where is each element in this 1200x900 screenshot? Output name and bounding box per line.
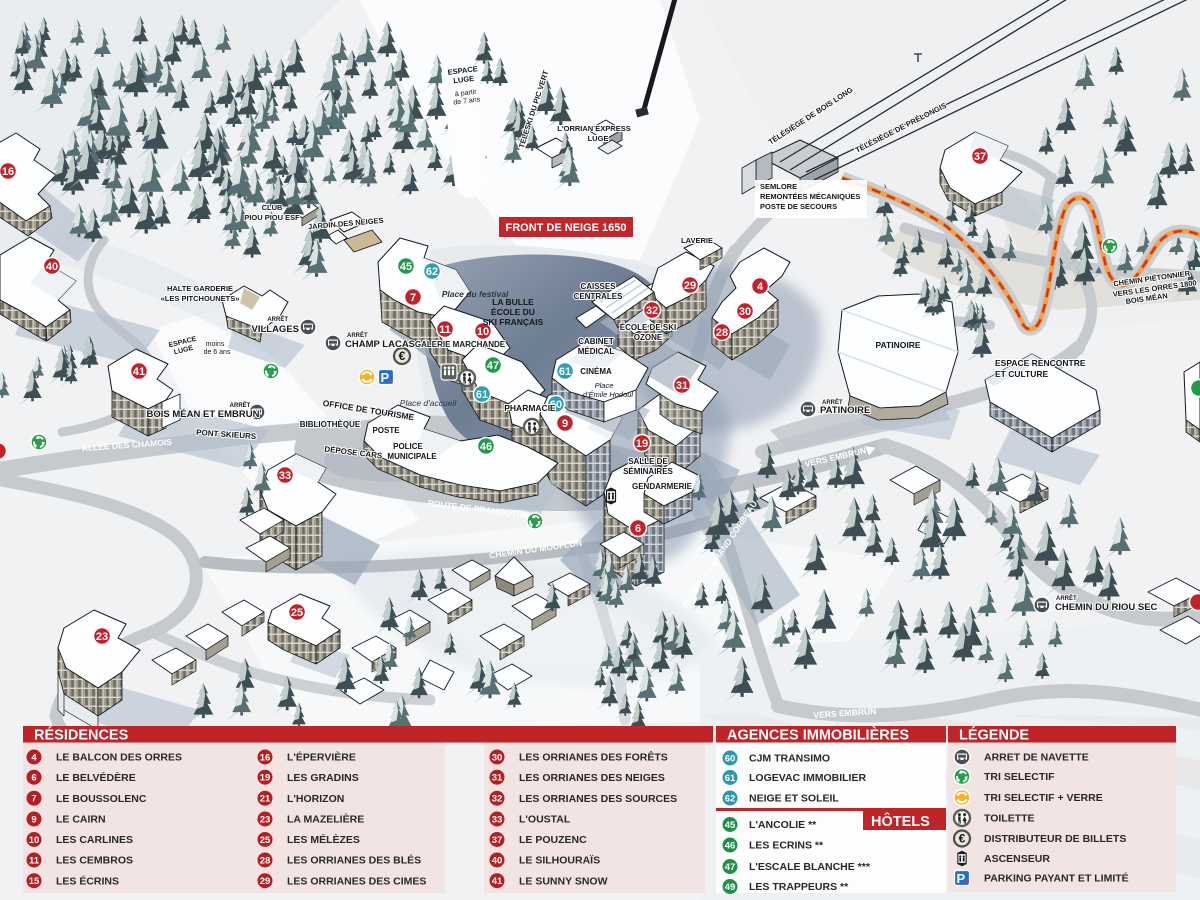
svg-text:LE BELVÉDÈRE: LE BELVÉDÈRE — [56, 771, 136, 784]
svg-text:CJM TRANSIMO: CJM TRANSIMO — [749, 753, 830, 765]
svg-text:LA MAZELIÈRE: LA MAZELIÈRE — [287, 813, 364, 826]
svg-text:LES ORRIANES DES SOURCES: LES ORRIANES DES SOURCES — [519, 793, 677, 805]
svg-text:moins: moins — [206, 341, 225, 348]
svg-text:PATINOIRE: PATINOIRE — [875, 340, 920, 350]
svg-text:LUGE: LUGE — [588, 134, 609, 143]
svg-text:LAVERIE: LAVERIE — [681, 236, 713, 245]
svg-text:Place: Place — [595, 381, 614, 390]
svg-text:ÉCOLE DU: ÉCOLE DU — [491, 307, 535, 317]
svg-text:TOILETTE: TOILETTE — [984, 813, 1035, 825]
svg-text:PARKING PAYANT ET LIMITÉ: PARKING PAYANT ET LIMITÉ — [984, 872, 1129, 885]
svg-text:LES ÉCRINS: LES ÉCRINS — [56, 874, 119, 887]
svg-text:LES ORRIANES DES FORÊTS: LES ORRIANES DES FORÊTS — [519, 751, 668, 764]
svg-text:19: 19 — [260, 773, 271, 784]
svg-text:15: 15 — [29, 876, 40, 887]
svg-text:16: 16 — [260, 752, 271, 763]
svg-text:40: 40 — [46, 261, 58, 273]
svg-text:32: 32 — [646, 305, 658, 317]
svg-text:29: 29 — [260, 876, 271, 887]
svg-text:19: 19 — [636, 438, 648, 450]
svg-text:28: 28 — [716, 327, 728, 339]
svg-text:«LES PITCHOUNETS»: «LES PITCHOUNETS» — [161, 294, 240, 303]
svg-text:ARRET DE NAVETTE: ARRET DE NAVETTE — [984, 752, 1089, 764]
svg-text:LE BOUSSOLENC: LE BOUSSOLENC — [56, 793, 147, 805]
svg-text:7: 7 — [31, 794, 36, 805]
svg-text:CHEMIN DU RIOU SEC: CHEMIN DU RIOU SEC — [1055, 602, 1158, 613]
svg-text:25: 25 — [291, 607, 303, 619]
svg-text:L'OUSTAL: L'OUSTAL — [519, 814, 571, 826]
svg-text:11: 11 — [29, 855, 40, 866]
svg-text:40: 40 — [492, 855, 503, 866]
svg-text:L'ANCOLIE **: L'ANCOLIE ** — [749, 819, 817, 831]
svg-text:ASCENSEUR: ASCENSEUR — [984, 853, 1050, 865]
svg-text:ARRÊT: ARRÊT — [230, 401, 251, 409]
svg-text:LES GRADINS: LES GRADINS — [287, 772, 359, 784]
svg-text:POLICE: POLICE — [393, 442, 423, 451]
svg-text:ARRÊT: ARRÊT — [347, 331, 368, 339]
svg-text:LE SILHOURAÏS: LE SILHOURAÏS — [519, 854, 600, 867]
svg-text:SALLE DE: SALLE DE — [628, 457, 668, 466]
svg-text:10: 10 — [477, 326, 489, 338]
svg-text:AGENCES IMMOBILIÈRES: AGENCES IMMOBILIÈRES — [727, 727, 909, 744]
svg-text:CAISSES: CAISSES — [580, 282, 616, 291]
svg-text:LE CAIRN: LE CAIRN — [56, 814, 106, 826]
svg-text:LES MÉLÈZES: LES MÉLÈZES — [287, 833, 360, 846]
svg-text:33: 33 — [492, 814, 503, 825]
svg-text:61: 61 — [476, 389, 488, 401]
svg-text:TRI SELECTIF + VERRE: TRI SELECTIF + VERRE — [984, 792, 1103, 804]
svg-text:LES CEMBROS: LES CEMBROS — [56, 855, 133, 867]
svg-text:CLUB: CLUB — [262, 203, 283, 212]
svg-text:NEIGE ET SOLEIL: NEIGE ET SOLEIL — [749, 793, 839, 805]
svg-text:BOIS MÉAN ET EMBRUN: BOIS MÉAN ET EMBRUN — [147, 409, 260, 420]
svg-text:7: 7 — [410, 292, 416, 304]
svg-text:LES ECRINS **: LES ECRINS ** — [749, 840, 824, 852]
svg-text:61: 61 — [559, 366, 571, 378]
svg-text:DISTRIBUTEUR DE BILLETS: DISTRIBUTEUR DE BILLETS — [984, 833, 1126, 845]
svg-text:37: 37 — [974, 151, 986, 163]
svg-text:4: 4 — [757, 281, 764, 293]
svg-text:VILLAGES: VILLAGES — [251, 324, 299, 335]
svg-text:MÉDICAL: MÉDICAL — [578, 347, 615, 356]
svg-text:10: 10 — [29, 835, 40, 846]
svg-text:L'ORRIAN EXPRESS: L'ORRIAN EXPRESS — [557, 124, 630, 133]
svg-text:46: 46 — [480, 441, 492, 453]
svg-text:47: 47 — [487, 360, 499, 372]
svg-text:37: 37 — [492, 835, 503, 846]
svg-text:31: 31 — [492, 773, 503, 784]
svg-text:32: 32 — [492, 794, 503, 805]
svg-text:REMONTÉES MÉCANIQUES: REMONTÉES MÉCANIQUES — [760, 192, 860, 201]
svg-text:de 6 ans: de 6 ans — [204, 349, 231, 356]
svg-text:LES CARLINES: LES CARLINES — [56, 834, 133, 846]
svg-text:62: 62 — [725, 793, 736, 804]
svg-text:LES TRAPPEURS **: LES TRAPPEURS ** — [749, 881, 849, 893]
svg-text:ÉCOLE DE SKI: ÉCOLE DE SKI — [620, 323, 676, 332]
svg-text:6: 6 — [31, 773, 36, 784]
svg-text:CENTRALES: CENTRALES — [574, 292, 624, 301]
svg-text:LES ORRIANES DES NEIGES: LES ORRIANES DES NEIGES — [519, 772, 665, 784]
svg-text:28: 28 — [260, 855, 271, 866]
svg-text:21: 21 — [260, 794, 271, 805]
svg-text:30: 30 — [492, 752, 503, 763]
svg-text:SÉMINAIRES: SÉMINAIRES — [623, 467, 673, 476]
svg-text:CHAMP LACAS: CHAMP LACAS — [345, 339, 415, 350]
svg-text:46: 46 — [725, 840, 736, 851]
svg-text:41: 41 — [492, 876, 503, 887]
svg-text:45: 45 — [725, 820, 736, 831]
svg-text:L'ÉPERVIÈRE: L'ÉPERVIÈRE — [287, 751, 356, 764]
svg-text:ARRÊT: ARRÊT — [267, 315, 288, 323]
svg-text:60: 60 — [725, 753, 736, 764]
svg-text:6: 6 — [635, 523, 641, 535]
svg-text:23: 23 — [260, 814, 271, 825]
svg-text:L'HORIZON: L'HORIZON — [287, 793, 344, 805]
svg-text:LES ORRIANES DES CIMES: LES ORRIANES DES CIMES — [287, 875, 426, 887]
svg-text:Place d'accueil: Place d'accueil — [400, 398, 458, 408]
svg-text:CINÉMA: CINÉMA — [580, 367, 612, 376]
svg-text:SKI FRANÇAIS: SKI FRANÇAIS — [483, 317, 544, 327]
svg-text:4: 4 — [31, 752, 37, 763]
svg-text:LOGEVAC IMMOBILIER: LOGEVAC IMMOBILIER — [749, 772, 866, 784]
svg-text:d'Émile Hodoul: d'Émile Hodoul — [583, 390, 634, 399]
svg-text:LES ORRIANES DES BLÉS: LES ORRIANES DES BLÉS — [287, 854, 421, 867]
svg-text:LÉGENDE: LÉGENDE — [959, 727, 1029, 744]
svg-text:61: 61 — [725, 773, 736, 784]
svg-text:FRONT DE NEIGE 1650: FRONT DE NEIGE 1650 — [505, 222, 626, 234]
svg-text:BIBLIOTHÈQUE: BIBLIOTHÈQUE — [300, 420, 361, 429]
svg-text:PIOU PIOU ESF: PIOU PIOU ESF — [244, 213, 300, 222]
svg-text:30: 30 — [739, 306, 751, 318]
svg-text:LE SUNNY SNOW: LE SUNNY SNOW — [519, 875, 608, 887]
svg-text:HÔTELS: HÔTELS — [871, 812, 930, 830]
svg-text:29: 29 — [684, 280, 696, 292]
svg-text:MUNICIPALE: MUNICIPALE — [387, 452, 437, 461]
svg-text:23: 23 — [96, 631, 108, 643]
svg-text:GENDARMERIE: GENDARMERIE — [632, 482, 693, 491]
svg-text:9: 9 — [31, 814, 36, 825]
svg-text:25: 25 — [260, 835, 271, 846]
svg-text:9: 9 — [562, 418, 568, 430]
svg-text:16: 16 — [2, 166, 14, 178]
svg-text:RÉSIDENCES: RÉSIDENCES — [34, 727, 129, 744]
svg-text:31: 31 — [676, 380, 688, 392]
svg-text:62: 62 — [426, 266, 438, 278]
svg-text:OZONE: OZONE — [634, 333, 663, 342]
svg-text:POSTE: POSTE — [372, 426, 400, 435]
svg-text:45: 45 — [400, 261, 412, 273]
svg-text:PATINOIRE: PATINOIRE — [820, 405, 870, 416]
svg-text:HALTE GARDERIE: HALTE GARDERIE — [167, 284, 233, 293]
svg-text:LE POUZENC: LE POUZENC — [519, 834, 587, 846]
svg-text:LE BALCON DES ORRES: LE BALCON DES ORRES — [56, 752, 182, 764]
svg-text:SEMLORE: SEMLORE — [760, 182, 797, 191]
svg-text:ET CULTURE: ET CULTURE — [995, 369, 1049, 379]
svg-text:L'ESCALE BLANCHE ***: L'ESCALE BLANCHE *** — [749, 861, 871, 873]
svg-text:11: 11 — [439, 324, 451, 336]
svg-text:ARRÊT: ARRÊT — [1056, 594, 1077, 602]
svg-text:CABINET: CABINET — [578, 337, 614, 346]
svg-text:41: 41 — [133, 366, 145, 378]
svg-text:TRI SELECTIF: TRI SELECTIF — [984, 771, 1055, 783]
svg-text:49: 49 — [725, 882, 736, 893]
svg-text:33: 33 — [279, 470, 291, 482]
svg-text:47: 47 — [725, 862, 736, 873]
svg-text:LA BULLE: LA BULLE — [492, 297, 534, 307]
svg-text:ESPACE RENCONTRE: ESPACE RENCONTRE — [995, 358, 1086, 368]
svg-text:POSTE DE SECOURS: POSTE DE SECOURS — [760, 202, 837, 211]
svg-text:PHARMACIE: PHARMACIE — [504, 403, 556, 413]
svg-text:GALERIE MARCHANDE: GALERIE MARCHANDE — [415, 340, 506, 349]
